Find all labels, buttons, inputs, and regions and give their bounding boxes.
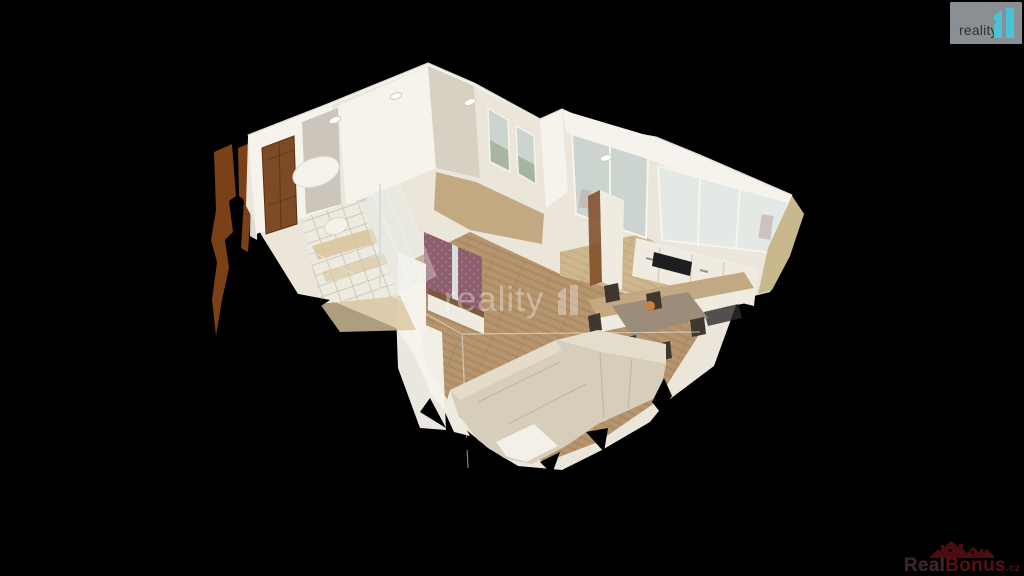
realbonus-real-text: Real: [904, 555, 945, 576]
table-flowers: [645, 301, 655, 311]
reality-logo-text: reality: [959, 22, 998, 38]
tall-kitchen-cabinet: [588, 190, 624, 290]
realbonus-bonus-text: Bonus: [945, 555, 1006, 576]
dollhouse-3d-view[interactable]: [0, 0, 1024, 576]
scan-artifact-strips: [211, 143, 252, 336]
reality-bars-icon: [993, 6, 1017, 40]
hall-mirror: [452, 244, 458, 306]
reality-logo-badge: reality: [950, 2, 1022, 44]
realbonus-tld-text: .cz: [1006, 563, 1020, 574]
realbonus-logo: RealBonus.cz: [902, 541, 1022, 575]
tour-viewer-stage[interactable]: reality reality RealBonus.cz: [0, 0, 1024, 576]
entry-door: [262, 136, 297, 234]
realbonus-logo-text: RealBonus.cz: [902, 556, 1022, 575]
